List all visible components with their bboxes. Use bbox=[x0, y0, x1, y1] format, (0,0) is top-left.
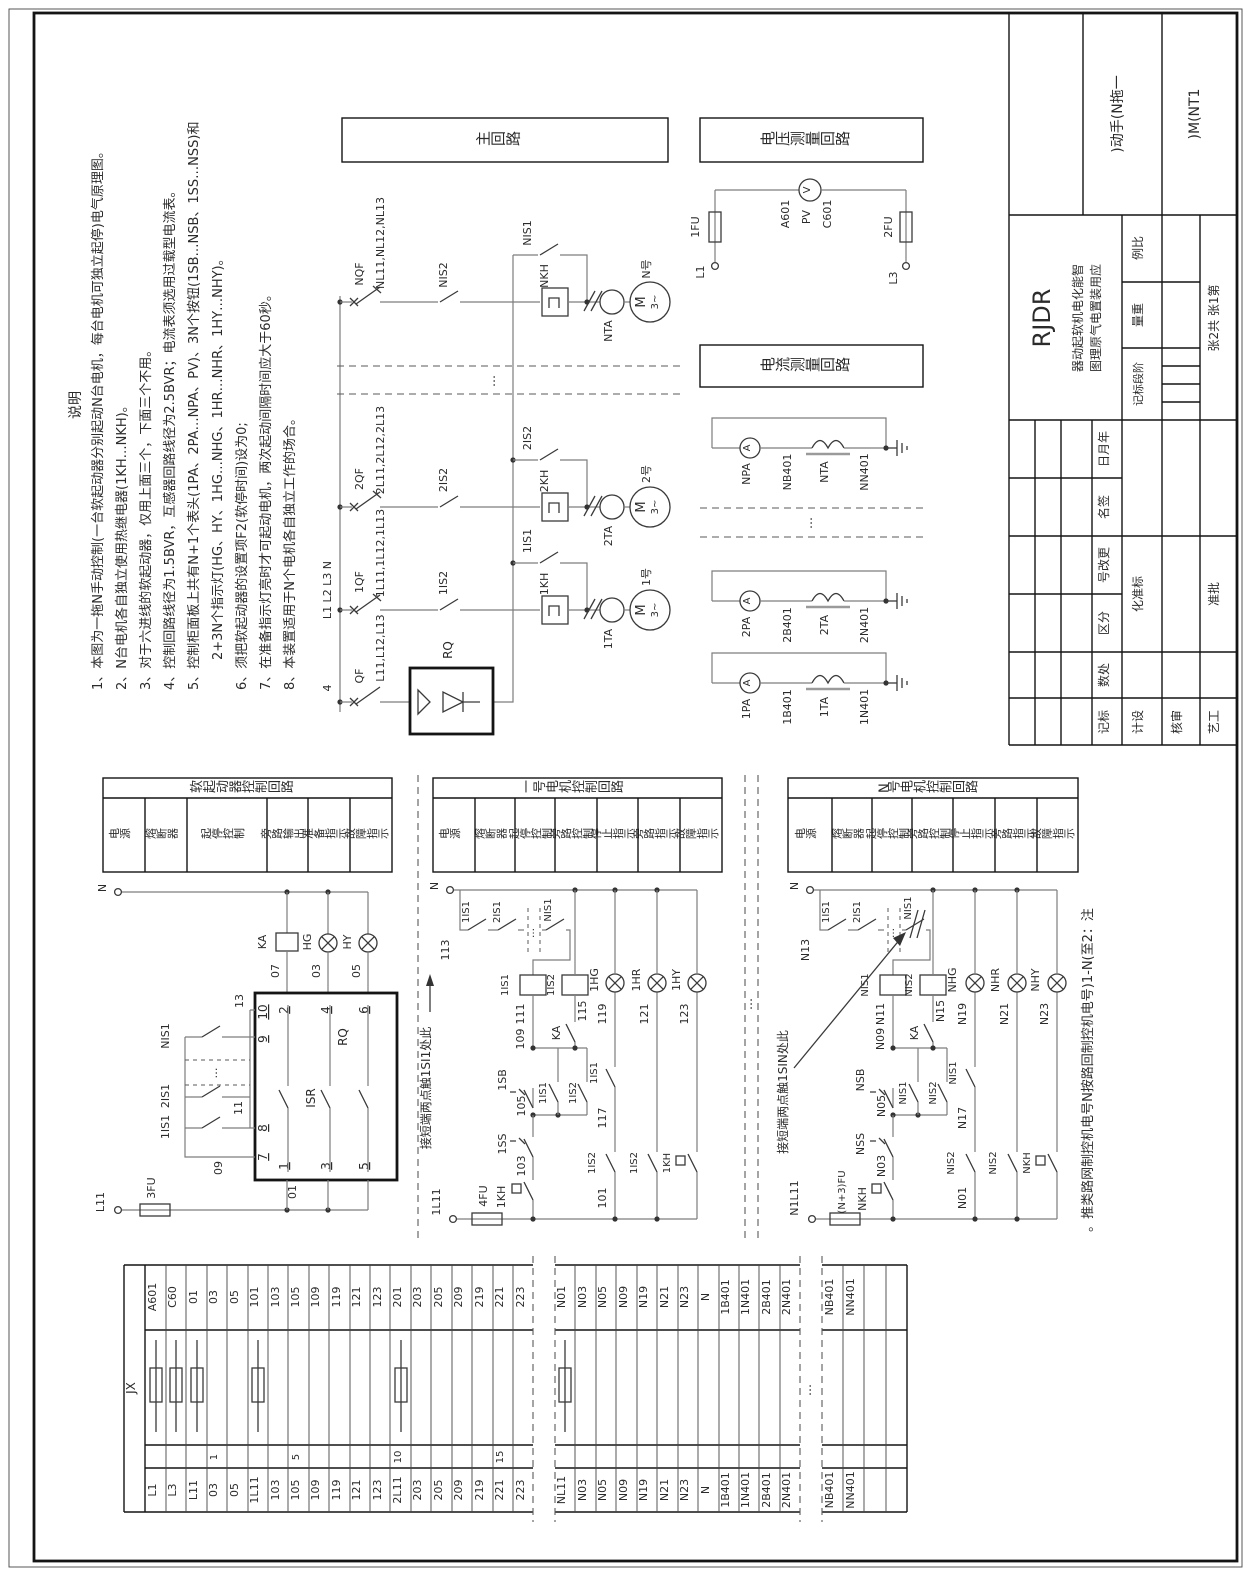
col-startstop: 起停控制 bbox=[200, 828, 246, 839]
bank-nis1: NIS1 bbox=[159, 1023, 172, 1048]
seq-1: 1 bbox=[209, 1454, 220, 1460]
svg-text:01: 01 bbox=[187, 1290, 200, 1304]
b-label: NB401 bbox=[781, 454, 794, 491]
ss-button: 1SS bbox=[496, 1134, 509, 1155]
motor-m: M bbox=[634, 501, 649, 512]
svg-text:1N401: 1N401 bbox=[739, 1472, 752, 1508]
terminal-table: … JX A601 C60 01 03 05 101 103 105 109 1… bbox=[124, 1256, 907, 1522]
seq-5: 5 bbox=[291, 1454, 302, 1460]
ct-label: 1TA bbox=[602, 628, 615, 649]
svg-text:205: 205 bbox=[432, 1480, 445, 1501]
voltage-measure-circuit: L1 1FU V A601 PV C601 2FU L3 bbox=[689, 179, 912, 285]
svg-text:N05: N05 bbox=[596, 1479, 609, 1501]
bank-nis1: NIS1 bbox=[543, 898, 554, 921]
tb-std: 化准标 bbox=[1131, 576, 1145, 612]
svg-text:103: 103 bbox=[269, 1480, 282, 1501]
col-power: 电源 bbox=[108, 828, 132, 839]
note-item-5a: 5、控制柜面板上共有N+1个表头(1PA、2PA…NPA、PV)、3N个按钮(1… bbox=[187, 122, 202, 690]
svg-text:N03: N03 bbox=[576, 1479, 589, 1501]
src-label: 1L11 bbox=[430, 1188, 443, 1215]
svg-text:123: 123 bbox=[371, 1480, 384, 1501]
ta-label: NTA bbox=[818, 461, 831, 483]
svg-text:105: 105 bbox=[289, 1287, 302, 1308]
notes-block: 说明 1、本图为一拖N手动控制(一台软起动器分别起动N台电机，每台电机可独立起停… bbox=[68, 122, 298, 690]
w113: 113 bbox=[439, 940, 452, 961]
svg-text:03: 03 bbox=[207, 1483, 220, 1497]
v-fu1: 1FU bbox=[689, 216, 702, 237]
n17: N17 bbox=[956, 1107, 969, 1129]
svg-text:05: 05 bbox=[228, 1290, 241, 1304]
main-circuit: L1 L2 L3 N 4 … NQF NL11,NL12,NL13 NIS2 N… bbox=[321, 197, 680, 734]
soft-starter-control: N KA 07 HG 03 HY 05 2 4 6 1 3 5 10 9 8 7… bbox=[94, 884, 397, 1216]
coil-nis2: NIS2 bbox=[904, 973, 915, 996]
col-startstop: 起停控制 bbox=[508, 828, 554, 839]
col-power: 电源 bbox=[794, 828, 818, 839]
svg-text:123: 123 bbox=[371, 1287, 384, 1308]
col-fuse: 熔断器 bbox=[144, 828, 180, 839]
bank-2is1: 2IS1 bbox=[852, 901, 863, 923]
w07: 07 bbox=[269, 964, 282, 978]
extrapolation-note: 。推类路网制控机电号N按路回制控机电号)1-N(至2：注 bbox=[1080, 908, 1096, 1232]
svg-text:201: 201 bbox=[391, 1287, 404, 1308]
rq-t5: 5 bbox=[357, 1162, 371, 1170]
bank-2is1: 2IS1 bbox=[159, 1084, 172, 1108]
n21: N21 bbox=[998, 1003, 1011, 1025]
hold-1is2: 1IS2 bbox=[568, 1082, 579, 1104]
ammeter-a: A bbox=[742, 597, 753, 604]
rq-t3: 3 bbox=[319, 1162, 333, 1170]
svg-text:119: 119 bbox=[330, 1287, 343, 1308]
svg-text:L11: L11 bbox=[187, 1480, 200, 1500]
w01: 01 bbox=[286, 1185, 299, 1199]
svg-text:219: 219 bbox=[473, 1480, 486, 1501]
n23: N23 bbox=[1038, 1003, 1051, 1025]
rq-t10: 10 bbox=[256, 1004, 270, 1019]
svg-text:119: 119 bbox=[330, 1480, 343, 1501]
svg-text:N19: N19 bbox=[637, 1286, 650, 1308]
short-note: 接短端两点触1SIN处此 bbox=[775, 1030, 790, 1154]
hr-lamp: NHR bbox=[989, 968, 1002, 993]
hold-1is1: 1IS1 bbox=[538, 1082, 549, 1104]
svg-text:N21: N21 bbox=[658, 1479, 671, 1501]
svg-text:N05: N05 bbox=[596, 1286, 609, 1308]
tb-sub2: 图理原气电置装用应 bbox=[1088, 264, 1103, 372]
n05: N05 bbox=[875, 1095, 888, 1117]
tb-design: 计设 bbox=[1131, 710, 1145, 734]
svg-text:109: 109 bbox=[309, 1287, 322, 1308]
svg-text:N: N bbox=[699, 1486, 712, 1494]
bank-1is1: 1IS1 bbox=[821, 901, 832, 923]
svg-text:101: 101 bbox=[248, 1287, 261, 1308]
svg-text:209: 209 bbox=[452, 1480, 465, 1501]
breaker-label: 1QF bbox=[353, 571, 366, 593]
v-c601: C601 bbox=[821, 200, 834, 229]
terminal-bottom-labels: L1 L3 L11 03 05 1L11 103 105 109 119 121… bbox=[146, 1471, 857, 1508]
svg-text:N23: N23 bbox=[678, 1479, 691, 1501]
main-branch-rq: QF L11,L12,L13 RQ bbox=[337, 614, 493, 734]
tb-change: 号改更 bbox=[1097, 547, 1111, 583]
col-bypass-out: 旁路输出 bbox=[259, 828, 306, 839]
svg-text:L3: L3 bbox=[166, 1483, 179, 1496]
svg-text:2L11: 2L11 bbox=[391, 1476, 404, 1503]
note-item-7: 7、在准备指示灯亮时才可起动电机，两次起动间隔时间应大于60秒。 bbox=[258, 288, 274, 690]
kh-contact: NKH bbox=[856, 1187, 869, 1211]
n11: N11 bbox=[874, 1003, 887, 1025]
group-title: 软起动器控制回路 bbox=[190, 780, 296, 793]
tb-sub1: 器动起软机电化能智 bbox=[1070, 264, 1085, 372]
n-label: 2N401 bbox=[858, 607, 871, 643]
bank-1is1: 1IS1 bbox=[159, 1115, 172, 1139]
bank-ellipsis: … bbox=[526, 928, 537, 938]
rq-t1: 1 bbox=[277, 1162, 291, 1170]
col-stop-ind: 停止指示 bbox=[589, 828, 636, 839]
motor-no: N号 bbox=[640, 259, 653, 278]
seq-15: 15 bbox=[495, 1451, 506, 1464]
w123: 123 bbox=[678, 1004, 691, 1025]
ka-contact: KA bbox=[908, 1025, 921, 1040]
group-header-motor-1: 一号电机控制回路 电源 熔断器 起停控制 旁路控制 停止指示 旁路指示 故障指示 bbox=[433, 778, 722, 872]
svg-text:203: 203 bbox=[411, 1480, 424, 1501]
w13: 13 bbox=[233, 994, 246, 1008]
branch-ellipsis: … bbox=[484, 375, 498, 387]
n09: N09 bbox=[874, 1028, 887, 1050]
n-label: N bbox=[788, 882, 801, 890]
main-branch-n: NQF NL11,NL12,NL13 NIS2 NKH NIS1 NTA M 3… bbox=[337, 197, 670, 342]
tb-approve: 准批 bbox=[1206, 582, 1221, 606]
col-fuse: 熔断器 bbox=[830, 828, 866, 839]
bank-1is1: 1IS1 bbox=[461, 901, 472, 923]
thermal-label: NKH bbox=[538, 264, 551, 288]
main-branch-1: 1QF 1L11,1L12,1L13 1IS2 1KH 1IS1 1TA M 3… bbox=[337, 509, 670, 649]
v-l1: L1 bbox=[694, 265, 707, 278]
lamp-chain-nkh: NKH bbox=[1022, 1152, 1033, 1174]
hy-lamp: 1HY bbox=[670, 969, 683, 991]
motor-m: M bbox=[634, 604, 649, 615]
current-loop-1: A 1PA 1B401 1TA 1N401 bbox=[712, 653, 907, 725]
tb-product: RJDR bbox=[1028, 289, 1056, 348]
breaker-label: QF bbox=[353, 669, 366, 684]
bypass-label: 2IS2 bbox=[521, 426, 534, 450]
seq-10: 10 bbox=[393, 1451, 404, 1464]
col-fault: 故障指示 bbox=[343, 828, 390, 839]
n13: N13 bbox=[799, 939, 812, 961]
rq-t7: 7 bbox=[256, 1153, 270, 1161]
bypass-label: 1IS1 bbox=[521, 529, 534, 553]
w109: 109 bbox=[514, 1029, 527, 1050]
col-ready: 准备指示 bbox=[302, 828, 348, 839]
hg-lamp: 1HG bbox=[588, 968, 601, 992]
terminal-top-labels: A601 C60 01 03 05 101 103 105 109 119 12… bbox=[146, 1278, 857, 1315]
lamp-chain-1is1: 1IS1 bbox=[589, 1062, 600, 1084]
fu-label: (N+3)FU bbox=[837, 1170, 848, 1213]
tb-sheet: 张2共 张1第 bbox=[1207, 284, 1221, 351]
current-circuit-title: 电流测量回路 bbox=[759, 357, 852, 372]
svg-text:NN401: NN401 bbox=[844, 1278, 857, 1315]
svg-text:1L11: 1L11 bbox=[248, 1476, 261, 1503]
svg-text:109: 109 bbox=[309, 1480, 322, 1501]
ss-button: NSS bbox=[854, 1133, 867, 1155]
group-header-soft-starter: 软起动器控制回路 电源 熔断器 起停控制 旁路输出 准备指示 故障指示 bbox=[103, 778, 392, 872]
hr-lamp: 1HR bbox=[630, 968, 643, 991]
w03: 03 bbox=[310, 964, 323, 978]
table-ellipsis: … bbox=[800, 1384, 814, 1396]
rq-t2: 2 bbox=[277, 1006, 291, 1014]
svg-text:2B401: 2B401 bbox=[760, 1279, 773, 1315]
src-label: N1L11 bbox=[788, 1180, 801, 1215]
voltmeter-v: V bbox=[802, 186, 813, 193]
sb-button: NSB bbox=[854, 1069, 867, 1092]
col-fuse: 熔断器 bbox=[473, 828, 509, 839]
w09: 09 bbox=[212, 1161, 225, 1175]
n15: N15 bbox=[934, 1000, 947, 1022]
ammeter-a: A bbox=[742, 444, 753, 451]
rq-inner-label: RQ bbox=[336, 1028, 350, 1046]
w101: 101 bbox=[596, 1188, 609, 1209]
coil-1is1: 1IS1 bbox=[500, 974, 511, 996]
title-block: )动手(N拖一 )M(NT1 RJDR 器动起软机电化能智 图理原气电置装用应 … bbox=[1009, 13, 1237, 745]
note-item-3: 3、对于六进线的软起动器，仅用上面三个，下面三个不用。 bbox=[138, 344, 154, 690]
notes-title: 说明 bbox=[68, 391, 84, 419]
svg-text:N03: N03 bbox=[576, 1286, 589, 1308]
svg-text:203: 203 bbox=[411, 1287, 424, 1308]
svg-text:N09: N09 bbox=[617, 1479, 630, 1501]
fu-label: 4FU bbox=[477, 1185, 490, 1206]
v-a601: A601 bbox=[779, 200, 792, 229]
svg-text:NB401: NB401 bbox=[823, 1472, 836, 1509]
lamp-chain2-1is2: 1IS2 bbox=[629, 1152, 640, 1174]
bypass-label: NIS1 bbox=[521, 220, 534, 245]
ammeter-a: A bbox=[742, 679, 753, 686]
lamp-chain-1is2: 1IS2 bbox=[587, 1152, 598, 1174]
svg-text:N19: N19 bbox=[637, 1479, 650, 1501]
main-branch-2: 2QF 2L11,2L12,2L13 2IS2 2KH 2IS2 2TA M 3… bbox=[337, 406, 670, 546]
rq-t8: 8 bbox=[256, 1124, 270, 1132]
coil-1is2: 1IS2 bbox=[546, 974, 557, 996]
svg-text:223: 223 bbox=[514, 1480, 527, 1501]
w103: 103 bbox=[515, 1156, 528, 1177]
svg-text:03: 03 bbox=[207, 1290, 220, 1304]
group-header-motor-n: N号电机控制回路 电源 熔断器 起停控制 旁路控制 停止指示 旁路指示 故障指示 bbox=[788, 778, 1078, 872]
svg-text:1B401: 1B401 bbox=[719, 1279, 732, 1315]
svg-text:N: N bbox=[699, 1293, 712, 1301]
kh-contact: 1KH bbox=[495, 1186, 508, 1208]
rq-t6: 6 bbox=[357, 1006, 371, 1014]
col-fault-ind: 故障指示 bbox=[1029, 828, 1076, 839]
svg-text:221: 221 bbox=[493, 1287, 506, 1308]
group-title: N号电机控制回路 bbox=[878, 780, 981, 793]
svg-text:121: 121 bbox=[350, 1287, 363, 1308]
short-note: 接短端两点触1SI1处此 bbox=[418, 1027, 433, 1149]
w05: 05 bbox=[350, 964, 363, 978]
ta-label: 1TA bbox=[818, 696, 831, 717]
ta-label: 2TA bbox=[818, 614, 831, 635]
svg-text:C60: C60 bbox=[166, 1286, 179, 1308]
svg-text:219: 219 bbox=[473, 1287, 486, 1308]
b-label: 1B401 bbox=[781, 689, 794, 725]
motor-m: M bbox=[634, 296, 649, 307]
main-circuit-title: 主回路 bbox=[474, 131, 522, 146]
hy-lamp: NHY bbox=[1029, 968, 1042, 992]
line-label: L11,L12,L13 bbox=[374, 614, 387, 681]
tb-scale: 例比 bbox=[1131, 236, 1145, 260]
col-stop-ind: 停止指示 bbox=[947, 828, 994, 839]
w117: 117 bbox=[596, 1108, 609, 1129]
voltage-circuit-title: 电压测量回路 bbox=[759, 131, 852, 146]
svg-text:221: 221 bbox=[493, 1480, 506, 1501]
w11: 11 bbox=[232, 1101, 245, 1115]
line-label: 2L11,2L12,2L13 bbox=[374, 406, 387, 494]
bus-label: L1 L2 L3 N bbox=[321, 561, 334, 619]
w111: 111 bbox=[514, 1004, 527, 1025]
lamp-chain2-nis2: NIS2 bbox=[988, 1151, 999, 1174]
bank-ellipsis: … bbox=[207, 1068, 220, 1079]
svg-text:N23: N23 bbox=[678, 1286, 691, 1308]
n-label: N bbox=[428, 882, 441, 890]
svg-text:2N401: 2N401 bbox=[780, 1472, 793, 1508]
svg-text:NN401: NN401 bbox=[844, 1471, 857, 1508]
v-fu2: 2FU bbox=[882, 216, 895, 237]
svg-text:A601: A601 bbox=[146, 1283, 159, 1312]
hg-lamp: NHG bbox=[946, 967, 959, 992]
bank-ellipsis: … bbox=[886, 928, 897, 938]
tb-date: 日月年 bbox=[1097, 431, 1111, 467]
svg-text:N21: N21 bbox=[658, 1286, 671, 1308]
tb-mark: 记标 bbox=[1097, 710, 1111, 734]
isr-label: ISR bbox=[304, 1088, 318, 1108]
lamp-chain-1kh: 1KH bbox=[662, 1153, 673, 1173]
motor-ph: 3~ bbox=[650, 500, 661, 515]
tb-zone: 区分 bbox=[1097, 611, 1111, 635]
group-title: 一号电机控制回路 bbox=[520, 780, 626, 793]
section-headers: 主回路 电压测量回路 电流测量回路 bbox=[342, 118, 923, 387]
n19: N19 bbox=[956, 1003, 969, 1025]
thermal-label: 2KH bbox=[538, 470, 551, 492]
svg-text:2B401: 2B401 bbox=[760, 1472, 773, 1508]
strip-fuses bbox=[150, 1340, 571, 1432]
note-item-8: 8、本装置适用于N个电机各自独立工作的场合。 bbox=[282, 412, 298, 690]
note-item-1: 1、本图为一拖N手动控制(一台软起动器分别起动N台电机，每台电机可独立起停)电气… bbox=[90, 145, 106, 690]
pa-label: 2PA bbox=[740, 616, 753, 637]
wire-4: 4 bbox=[321, 685, 334, 692]
current-loop-n: A NPA NB401 NTA NN401 bbox=[712, 418, 907, 491]
note-item-2: 2、N台电机各自独立使用热继电器(1KH…NKH)。 bbox=[114, 399, 130, 690]
ka-contact: KA bbox=[550, 1025, 563, 1040]
tb-check: 核审 bbox=[1169, 710, 1184, 734]
svg-text:1B401: 1B401 bbox=[719, 1472, 732, 1508]
motor-no: 1号 bbox=[640, 568, 653, 586]
svg-text:NL11: NL11 bbox=[555, 1476, 568, 1504]
svg-text:L1: L1 bbox=[146, 1483, 159, 1496]
rq-t9: 9 bbox=[256, 1035, 270, 1043]
group-ellipsis: … bbox=[741, 998, 755, 1010]
b-label: 2B401 bbox=[781, 607, 794, 643]
col-fault-ind: 故障指示 bbox=[673, 828, 720, 839]
motor-no: 2号 bbox=[640, 465, 653, 483]
w121: 121 bbox=[638, 1004, 651, 1025]
ct-label: NTA bbox=[602, 320, 615, 342]
svg-text:NB401: NB401 bbox=[823, 1279, 836, 1316]
l11-label: L11 bbox=[94, 1192, 107, 1212]
svg-text:N01: N01 bbox=[555, 1286, 568, 1308]
svg-text:205: 205 bbox=[432, 1287, 445, 1308]
n01: N01 bbox=[956, 1187, 969, 1209]
col-power: 电源 bbox=[438, 828, 462, 839]
svg-text:2N401: 2N401 bbox=[780, 1279, 793, 1315]
hold-nis1: NIS1 bbox=[898, 1081, 909, 1104]
hy-label: HY bbox=[341, 934, 354, 949]
tb-variant: )动手(N拖一 bbox=[1110, 75, 1126, 152]
col-bypass-ind: 旁路指示 bbox=[631, 828, 678, 839]
hold-nis2: NIS2 bbox=[928, 1081, 939, 1104]
ka-coil-label: KA bbox=[256, 934, 269, 949]
n03: N03 bbox=[875, 1155, 888, 1177]
bank-2is1: 2IS1 bbox=[492, 901, 503, 923]
tb-weight: 量重 bbox=[1131, 303, 1145, 327]
motor-ph: 3~ bbox=[650, 295, 661, 310]
w119: 119 bbox=[596, 1004, 609, 1025]
contact-label: NIS2 bbox=[437, 262, 450, 287]
motor-1-control: N 113 1IS1 2IS1 NIS1 … 1IS1 1IS2 111 KA … bbox=[418, 882, 706, 1225]
w115: 115 bbox=[576, 1001, 589, 1022]
tb-stage: 记标段阶 bbox=[1131, 362, 1145, 406]
svg-text:105: 105 bbox=[289, 1480, 302, 1501]
breaker-label: 2QF bbox=[353, 468, 366, 490]
v-pv: PV bbox=[800, 209, 813, 224]
motor-ph: 3~ bbox=[650, 603, 661, 618]
svg-text:N09: N09 bbox=[617, 1286, 630, 1308]
tb-code: )M(NT1 bbox=[1187, 89, 1203, 140]
col-bypass: 旁路控制 bbox=[548, 828, 595, 839]
sb-button: 1SB bbox=[496, 1069, 509, 1091]
note-item-4: 4、控制回路线径为1.5BVR，互感器回路线径为2.5BVR；电流表须选用过载型… bbox=[162, 184, 178, 690]
col-bypass: 旁路控制 bbox=[905, 828, 952, 839]
svg-text:121: 121 bbox=[350, 1480, 363, 1501]
note-item-5b: 2+3N个指示灯(HG、HY、1HG…NHG、1HR…NHR、1HY…NHY)。 bbox=[211, 252, 226, 660]
svg-text:05: 05 bbox=[228, 1483, 241, 1497]
col-startstop: 起停控制 bbox=[865, 828, 911, 839]
current-measure-circuits: A NPA NB401 NTA NN401 … A bbox=[700, 418, 928, 725]
v-l3: L3 bbox=[887, 271, 900, 284]
current-loop-2: A 2PA 2B401 2TA 2N401 bbox=[712, 571, 907, 643]
line-label: NL11,NL12,NL13 bbox=[374, 197, 387, 289]
n-label: NN401 bbox=[858, 453, 871, 490]
rq-t4: 4 bbox=[319, 1006, 333, 1014]
svg-text:103: 103 bbox=[269, 1287, 282, 1308]
rq-label: RQ bbox=[441, 641, 455, 659]
contact-label: 2IS2 bbox=[437, 468, 450, 492]
fu-label: 3FU bbox=[145, 1177, 158, 1198]
tb-sign: 名签 bbox=[1096, 495, 1111, 519]
lamp-chain-nis2: NIS2 bbox=[946, 1151, 957, 1174]
thermal-label: 1KH bbox=[538, 573, 551, 595]
motor-n-control: N N13 1IS1 2IS1 NIS1 … NIS1 NIS2 N11 KA … bbox=[775, 882, 1096, 1232]
n-label: N bbox=[96, 884, 109, 892]
drawing-sheet: 说明 1、本图为一拖N手动控制(一台软起动器分别起动N台电机，每台电机可独立起停… bbox=[0, 0, 1251, 1576]
lamp-chain-nis1: NIS1 bbox=[948, 1061, 959, 1084]
bank-nis1: NIS1 bbox=[903, 896, 914, 919]
contact-label: 1IS2 bbox=[437, 571, 450, 595]
ct-label: 2TA bbox=[602, 525, 615, 546]
pa-label: NPA bbox=[740, 463, 753, 485]
col-bypass-ind: 旁路指示 bbox=[989, 828, 1036, 839]
pa-label: 1PA bbox=[740, 698, 753, 719]
hg-label: HG bbox=[301, 934, 314, 951]
jx-label: JX bbox=[124, 1382, 138, 1395]
svg-text:1N401: 1N401 bbox=[739, 1279, 752, 1315]
breaker-label: NQF bbox=[353, 262, 366, 285]
n-label: 1N401 bbox=[858, 689, 871, 725]
svg-text:209: 209 bbox=[452, 1287, 465, 1308]
